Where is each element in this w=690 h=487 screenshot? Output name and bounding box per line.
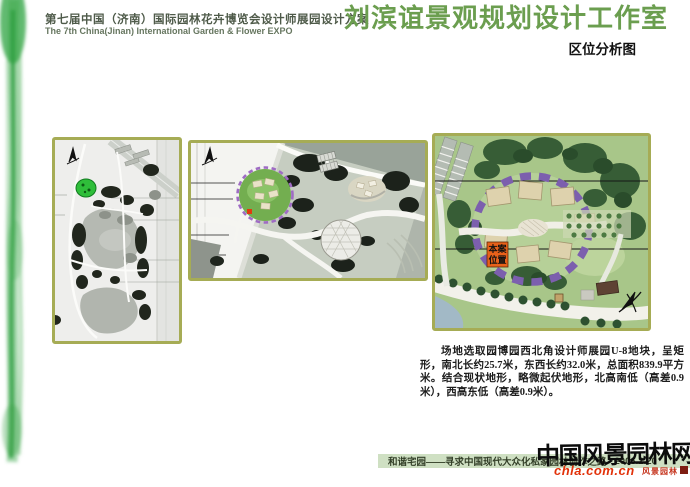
watercolor-strip xyxy=(0,0,44,487)
site-highlight xyxy=(76,179,96,197)
site-note: 场地选取园博园西北角设计师展园U-8地块，呈矩形，南北长约25.7米，东西长约3… xyxy=(420,345,684,399)
site-marker xyxy=(247,209,252,214)
svg-text:位置: 位置 xyxy=(488,254,506,265)
chla-site-url: chla.com.cn xyxy=(554,463,635,478)
project-title-cn: 第七届中国（济南）国际园林花卉博览会设计师展园设计方案 xyxy=(45,11,369,27)
building xyxy=(596,281,618,296)
chla-seal-icon xyxy=(680,466,688,474)
site-location-label: 本案 位置 xyxy=(487,242,508,267)
board: 第七届中国（济南）国际园林花卉博览会设计师展园设计方案 The 7th Chin… xyxy=(0,0,690,487)
svg-text:本案: 本案 xyxy=(488,243,507,254)
chla-calligraphy-script: 风景园林 xyxy=(642,466,678,477)
sheet-title: 区位分析图 xyxy=(520,38,636,58)
project-title-en: The 7th China(Jinan) International Garde… xyxy=(45,26,293,36)
map-expo-master-plan xyxy=(52,137,182,344)
dome-structure xyxy=(321,220,361,260)
map-site-detail-plan: 本案 位置 xyxy=(432,133,651,331)
chla-watermark: 中国风景园林网 chla.com.cn 风景园林 xyxy=(536,435,690,485)
map-northwest-area-plan xyxy=(188,140,428,281)
studio-title: 刘滨谊景观规划设计工作室 xyxy=(344,4,686,34)
